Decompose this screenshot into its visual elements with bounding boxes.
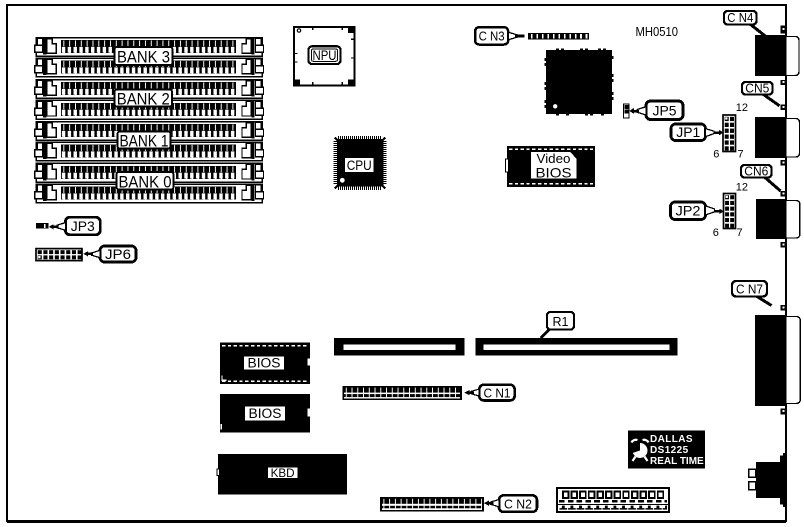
svg-text:BIOS: BIOS: [249, 406, 282, 421]
svg-text:R1: R1: [553, 314, 569, 329]
svg-text:C N3: C N3: [479, 29, 505, 44]
svg-text:DS1225: DS1225: [650, 445, 689, 456]
svg-text:12: 12: [736, 102, 748, 114]
svg-text:REAL TIME: REAL TIME: [650, 456, 704, 467]
svg-text:CN6: CN6: [744, 164, 768, 178]
svg-text:BANK 0: BANK 0: [119, 173, 172, 191]
svg-text:CN5: CN5: [745, 81, 769, 95]
svg-text:DALLAS: DALLAS: [650, 434, 693, 445]
svg-text:KBD: KBD: [271, 468, 295, 480]
svg-text:7: 7: [737, 227, 743, 239]
svg-text:BANK 1: BANK 1: [120, 133, 169, 151]
svg-text:BANK 2: BANK 2: [117, 91, 170, 109]
svg-text:6: 6: [713, 227, 719, 239]
svg-text:JP2: JP2: [676, 204, 701, 219]
svg-text:BANK 3: BANK 3: [117, 49, 170, 67]
svg-text:C N7: C N7: [736, 283, 763, 297]
svg-text:6: 6: [713, 149, 719, 161]
svg-text:BIOS: BIOS: [536, 164, 572, 180]
svg-text:MH0510: MH0510: [636, 25, 679, 39]
svg-text:C N4: C N4: [727, 11, 753, 25]
svg-text:JP5: JP5: [653, 103, 677, 118]
svg-text:C N1: C N1: [484, 386, 511, 400]
svg-text:BIOS: BIOS: [248, 356, 281, 371]
svg-text:JP1: JP1: [676, 125, 700, 140]
svg-text:7: 7: [738, 149, 744, 161]
svg-text:CPU: CPU: [347, 158, 372, 173]
svg-text:C N2: C N2: [504, 498, 532, 512]
svg-text:JP3: JP3: [71, 219, 95, 234]
svg-text:JP6: JP6: [105, 247, 131, 262]
svg-text:12: 12: [736, 181, 748, 193]
svg-text:NPU: NPU: [313, 48, 337, 63]
